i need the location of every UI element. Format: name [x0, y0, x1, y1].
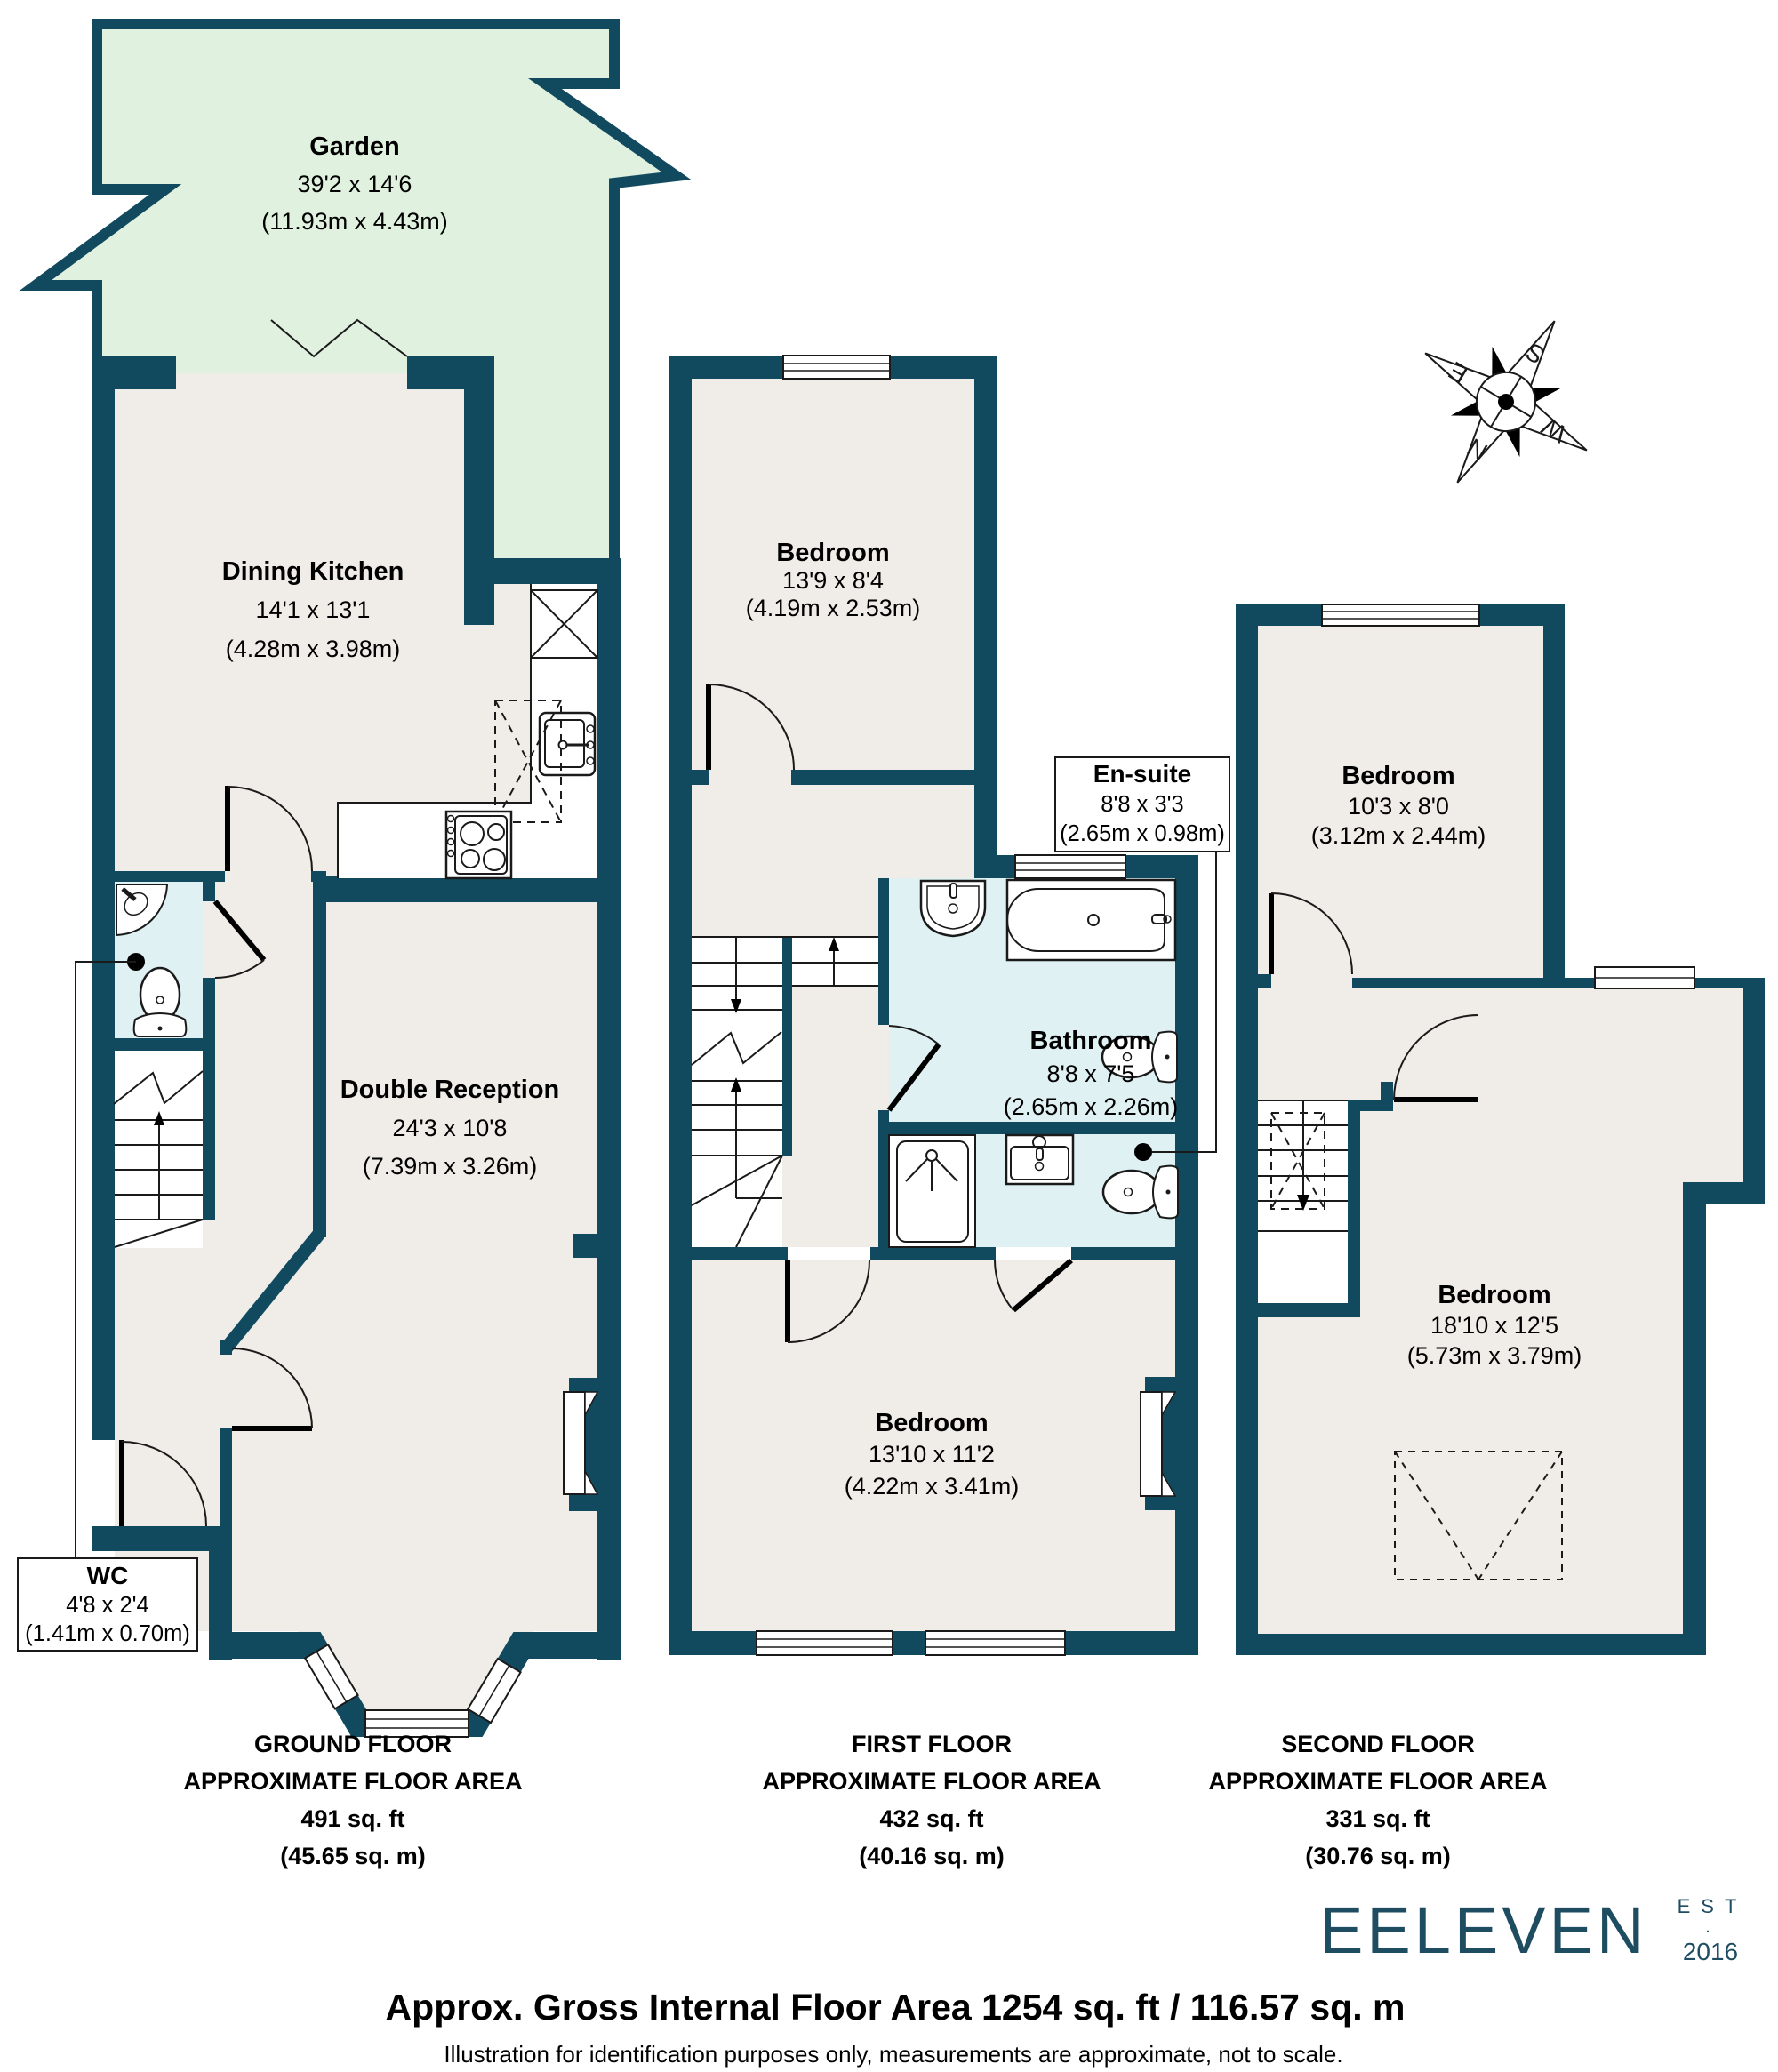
svg-text:EELEVEN: EELEVEN	[1319, 1893, 1647, 1967]
svg-text:8'8 x 7'5: 8'8 x 7'5	[1047, 1060, 1135, 1087]
svg-text:24'3 x 10'8: 24'3 x 10'8	[393, 1115, 508, 1141]
svg-text:Bedroom: Bedroom	[1342, 762, 1454, 790]
svg-text:Bedroom: Bedroom	[1438, 1281, 1550, 1309]
svg-text:Approx. Gross Internal Floor A: Approx. Gross Internal Floor Area 1254 s…	[386, 1987, 1406, 2028]
svg-text:WC: WC	[87, 1562, 129, 1589]
svg-text:4'8 x 2'4: 4'8 x 2'4	[66, 1593, 148, 1618]
svg-text:(4.19m x 2.53m): (4.19m x 2.53m)	[746, 595, 921, 621]
svg-text:Garden: Garden	[309, 132, 400, 161]
svg-text:13'10 x 11'2: 13'10 x 11'2	[869, 1441, 995, 1468]
svg-text:(11.93m x 4.43m): (11.93m x 4.43m)	[261, 208, 448, 235]
svg-text:(4.28m x 3.98m): (4.28m x 3.98m)	[226, 636, 401, 662]
svg-text:En-suite: En-suite	[1093, 760, 1191, 788]
svg-text:14'1 x 13'1: 14'1 x 13'1	[256, 596, 371, 623]
svg-text:APPROXIMATE FLOOR AREA: APPROXIMATE FLOOR AREA	[1208, 1768, 1547, 1795]
svg-text:EST: EST	[1678, 1895, 1748, 1917]
svg-text:39'2 x 14'6: 39'2 x 14'6	[298, 171, 412, 197]
svg-text:(2.65m x 0.98m): (2.65m x 0.98m)	[1060, 821, 1225, 846]
svg-text:FIRST FLOOR: FIRST FLOOR	[852, 1731, 1012, 1757]
svg-text:(4.22m x 3.41m): (4.22m x 3.41m)	[845, 1473, 1020, 1500]
svg-text:(40.16 sq. m): (40.16 sq. m)	[859, 1843, 1005, 1869]
svg-text:Illustration for identificatio: Illustration for identification purposes…	[444, 2041, 1342, 2068]
svg-text:Bedroom: Bedroom	[776, 539, 889, 567]
svg-text:10'3 x 8'0: 10'3 x 8'0	[1348, 793, 1449, 820]
svg-text:APPROXIMATE FLOOR AREA: APPROXIMATE FLOOR AREA	[183, 1768, 522, 1795]
svg-text:(7.39m x 3.26m): (7.39m x 3.26m)	[363, 1153, 538, 1180]
svg-text:(2.65m x 2.26m): (2.65m x 2.26m)	[1004, 1093, 1179, 1120]
svg-text:491 sq. ft: 491 sq. ft	[300, 1805, 404, 1832]
svg-text:(45.65 sq. m): (45.65 sq. m)	[280, 1843, 426, 1869]
svg-text:SECOND FLOOR: SECOND FLOOR	[1281, 1731, 1475, 1757]
svg-text:2016: 2016	[1683, 1938, 1738, 1965]
svg-text:(1.41m x 0.70m): (1.41m x 0.70m)	[25, 1621, 190, 1646]
svg-text:Double Reception: Double Reception	[340, 1076, 560, 1104]
svg-text:8'8 x 3'3: 8'8 x 3'3	[1101, 792, 1183, 817]
svg-text:.: .	[1705, 1917, 1710, 1937]
svg-text:GROUND FLOOR: GROUND FLOOR	[254, 1731, 452, 1757]
svg-text:APPROXIMATE FLOOR AREA: APPROXIMATE FLOOR AREA	[762, 1768, 1101, 1795]
svg-text:331 sq. ft: 331 sq. ft	[1325, 1805, 1430, 1832]
svg-text:Bedroom: Bedroom	[875, 1409, 988, 1437]
svg-text:432 sq. ft: 432 sq. ft	[879, 1805, 983, 1832]
svg-text:18'10 x 12'5: 18'10 x 12'5	[1430, 1312, 1558, 1339]
svg-text:(30.76 sq. m): (30.76 sq. m)	[1305, 1843, 1451, 1869]
svg-text:(3.12m x 2.44m): (3.12m x 2.44m)	[1311, 822, 1486, 849]
svg-text:13'9 x 8'4: 13'9 x 8'4	[782, 567, 884, 594]
svg-text:(5.73m x 3.79m): (5.73m x 3.79m)	[1407, 1342, 1582, 1369]
svg-text:Dining Kitchen: Dining Kitchen	[222, 557, 404, 586]
svg-text:Bathroom: Bathroom	[1030, 1027, 1152, 1055]
